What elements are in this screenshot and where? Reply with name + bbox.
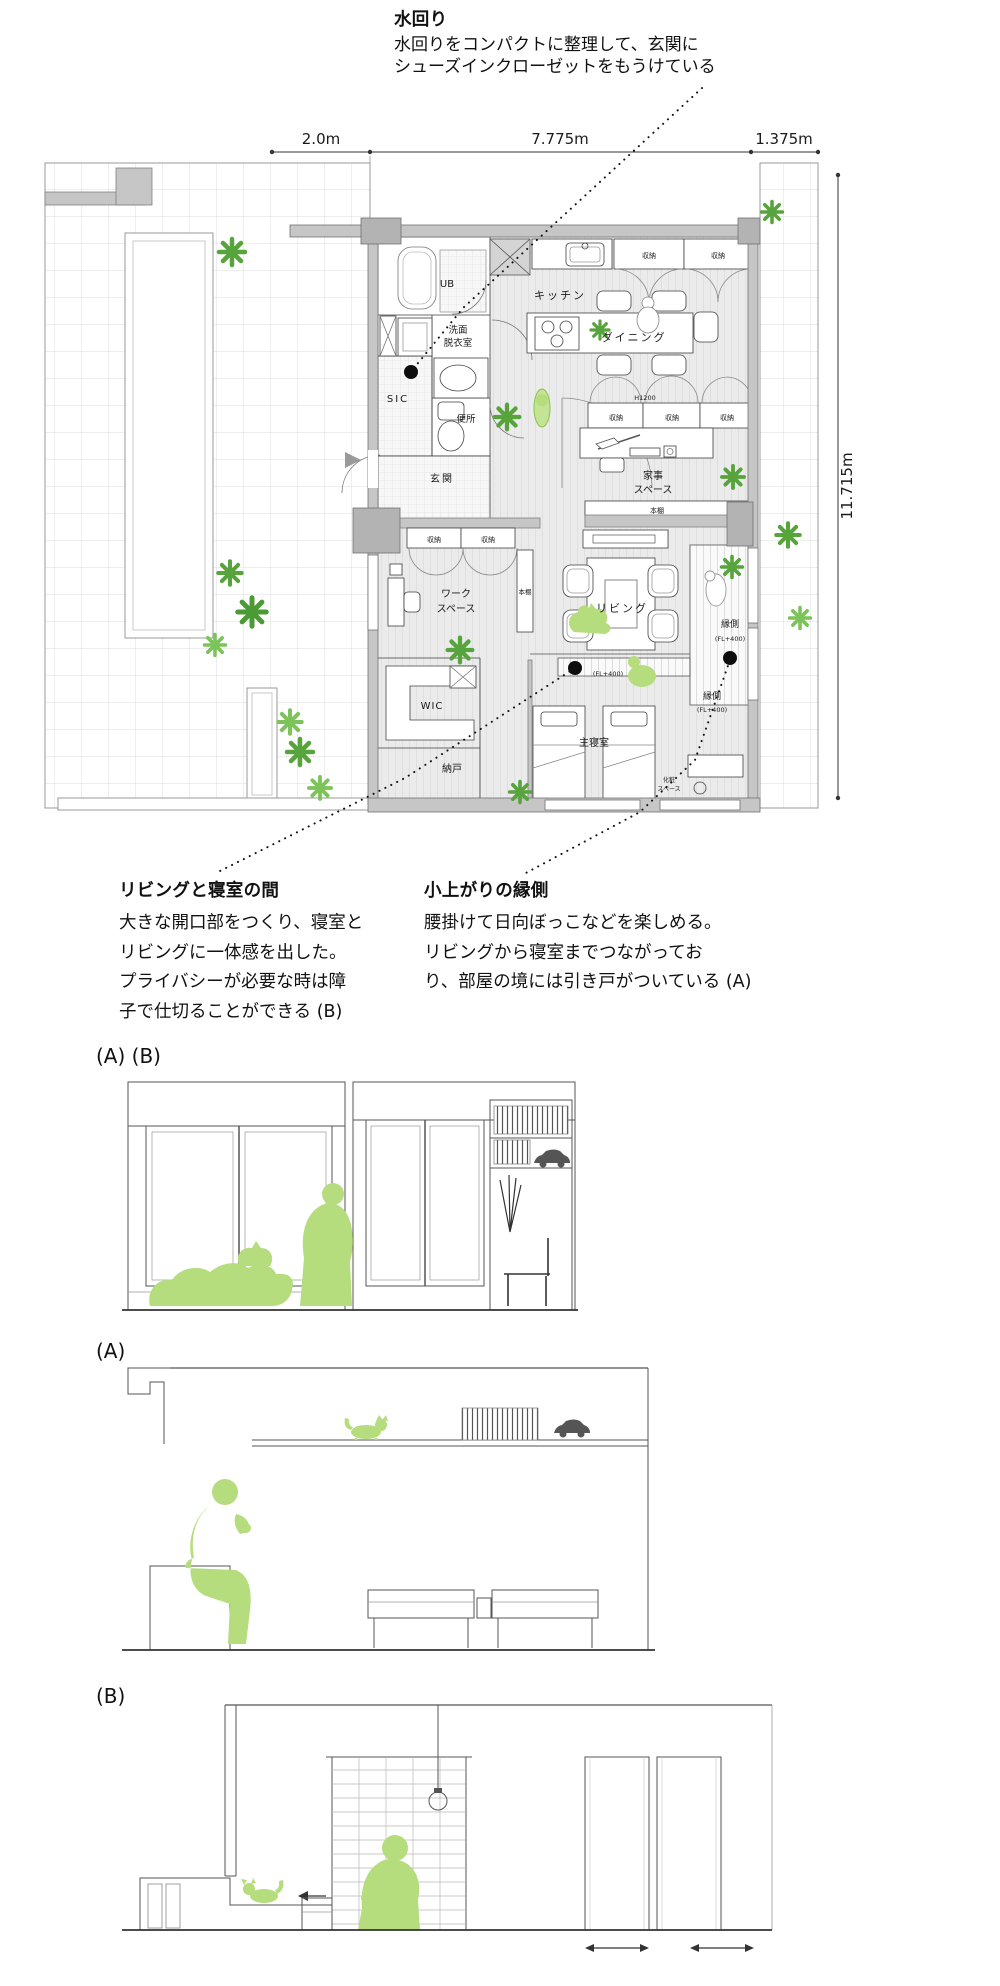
slide-arrow-icon — [585, 1944, 649, 1952]
room-label-hondana: 本棚 — [519, 587, 533, 596]
marker-dot-engawa — [723, 651, 737, 665]
room-label-sic: SIC — [387, 394, 409, 405]
room-label-shuno: 収納 — [609, 413, 623, 422]
room-label-senmen: 洗面 — [448, 324, 467, 336]
dim-right: 11.715m — [838, 452, 856, 519]
annotation-line: リビングに一体感を出した。 — [119, 939, 363, 969]
annotation-line: り、部屋の境には引き戸がついている (A) — [424, 968, 751, 998]
toy-car-icon — [554, 1420, 590, 1438]
room-label-shuno: 収納 — [481, 535, 495, 544]
room-label-ub: UB — [440, 279, 454, 290]
room-label-engawa: 縁側 — [721, 618, 739, 630]
dry-plant-icon — [500, 1175, 521, 1232]
balcony-right — [760, 163, 818, 808]
annotation-line: プライバシーが必要な時は障 — [119, 968, 363, 998]
cat-figure — [241, 1878, 283, 1903]
room-label-work: ワーク — [441, 588, 471, 600]
annotation-line: 腰掛けて日向ぼっこなどを楽しめる。 — [424, 909, 751, 939]
cat-figure — [345, 1415, 388, 1440]
annotation-title: リビングと寝室の間 — [119, 877, 363, 902]
room-label-shuno: 収納 — [711, 251, 725, 260]
section-a — [122, 1368, 655, 1650]
dim-top-2: 7.775m — [531, 130, 589, 148]
room-label-hondana: 本棚 — [650, 506, 664, 515]
room-label-wic: WIC — [421, 701, 444, 712]
terrace-left — [45, 163, 372, 810]
room-label-h1200: H1200 — [634, 394, 655, 402]
room-label-living: リビング — [596, 601, 648, 615]
cat-figure — [238, 1241, 272, 1266]
room-label-datsui: 脱衣室 — [444, 337, 473, 349]
section-ab-figures — [149, 1183, 353, 1306]
room-label-shuno: 収納 — [665, 413, 679, 422]
toy-car-icon — [534, 1150, 570, 1168]
chair-outline — [504, 1238, 550, 1306]
floor-plan: UB 洗面 脱衣室 SIC 便所 玄関 キッチン ダイニング 収納 収納 収納 … — [45, 163, 818, 812]
annotation-title: 水回り — [394, 6, 716, 31]
room-label-work2: スペース — [437, 604, 476, 615]
annotation-living-bedroom: リビングと寝室の間 大きな開口部をつくり、寝室と リビングに一体感を出した。 プ… — [119, 877, 363, 1027]
room-label-kaji: 家事 — [643, 469, 663, 482]
lying-person-figure — [149, 1263, 292, 1306]
room-label-shushin: 主寝室 — [579, 736, 609, 749]
annotation-line: 子で仕切ることができる (B) — [119, 998, 363, 1028]
room-label-genkan: 玄関 — [430, 472, 454, 485]
room-label-nando: 納戸 — [442, 762, 462, 775]
sitting-person-head — [322, 1183, 344, 1205]
room-label-kesho: 化粧 — [663, 776, 675, 784]
dim-top-3: 1.375m — [755, 130, 813, 148]
annotation-line: リビングから寝室までつながってお — [424, 939, 751, 969]
annotation-line: 大きな開口部をつくり、寝室と — [119, 909, 363, 939]
room-label-benjo: 便所 — [456, 413, 476, 425]
annotation-title: 小上がりの縁側 — [424, 877, 751, 902]
annotation-koagari: 小上がりの縁側 腰掛けて日向ぼっこなどを楽しめる。 リビングから寝室までつながっ… — [424, 877, 751, 998]
room-label-dining: ダイニング — [602, 330, 667, 344]
marker-dot-mizumawari — [404, 365, 418, 379]
annotation-line: シューズインクローゼットをもうけている — [394, 57, 716, 79]
dim-top-1: 2.0m — [302, 130, 340, 148]
room-label-fl400: (FL+400) — [715, 635, 745, 643]
annotation-line: 水回りをコンパクトに整理して、玄関に — [394, 35, 716, 57]
room-label-fl400: (FL+400) — [593, 670, 623, 678]
room-label-shuno: 収納 — [427, 535, 441, 544]
room-label-kitchen: キッチン — [534, 289, 586, 302]
annotation-mizumawari: 水回り 水回りをコンパクトに整理して、玄関に シューズインクローゼットをもうけて… — [394, 6, 716, 78]
section-ab — [122, 1082, 578, 1310]
architectural-sheet: UB 洗面 脱衣室 SIC 便所 玄関 キッチン ダイニング 収納 収納 収納 … — [0, 0, 1000, 1986]
section-b-label: (B) — [96, 1684, 125, 1708]
section-a-label: (A) — [96, 1339, 125, 1363]
room-label-shuno: 収納 — [720, 413, 734, 422]
sitting-person-figure — [300, 1203, 353, 1306]
section-a-figure — [185, 1479, 251, 1644]
room-label-shuno: 収納 — [642, 251, 656, 260]
section-ab-label: (A) (B) — [96, 1044, 161, 1068]
room-label-kaji2: スペース — [634, 485, 673, 496]
slide-arrow-icon — [690, 1944, 754, 1952]
section-b — [122, 1705, 772, 1952]
